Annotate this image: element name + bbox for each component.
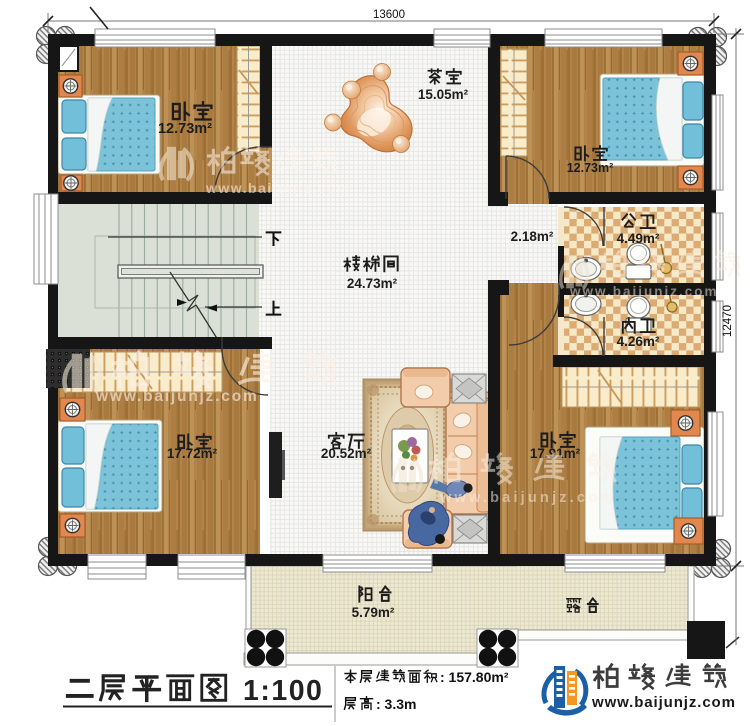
- svg-text:4.26m²: 4.26m²: [617, 334, 660, 349]
- svg-text:12.73m²: 12.73m²: [158, 121, 212, 137]
- svg-text:4.49m²: 4.49m²: [617, 231, 660, 246]
- svg-text:12470: 12470: [722, 305, 734, 337]
- svg-text:2.18m²: 2.18m²: [511, 229, 554, 244]
- svg-text:24.73m²: 24.73m²: [347, 276, 398, 291]
- svg-text:www.baijunjz.com: www.baijunjz.com: [569, 284, 719, 299]
- svg-text:www.baijunjz.com: www.baijunjz.com: [205, 180, 351, 196]
- svg-text:15.05m²: 15.05m²: [418, 87, 469, 102]
- svg-text:12.73m²: 12.73m²: [567, 161, 614, 175]
- svg-text:1:100: 1:100: [243, 675, 323, 707]
- svg-text:www.baijunjz.com: www.baijunjz.com: [439, 490, 616, 506]
- svg-text:www.baijunjz.com: www.baijunjz.com: [95, 388, 259, 405]
- svg-text:5.79m²: 5.79m²: [352, 605, 395, 620]
- svg-text:20.52m²: 20.52m²: [321, 446, 372, 461]
- svg-text:13600: 13600: [373, 9, 405, 21]
- svg-text:17.72m²: 17.72m²: [167, 446, 218, 461]
- svg-text:www.baijunjz.com: www.baijunjz.com: [591, 694, 736, 711]
- svg-text:: 3.3m: : 3.3m: [376, 696, 416, 712]
- svg-text:: 157.80m²: : 157.80m²: [440, 669, 509, 685]
